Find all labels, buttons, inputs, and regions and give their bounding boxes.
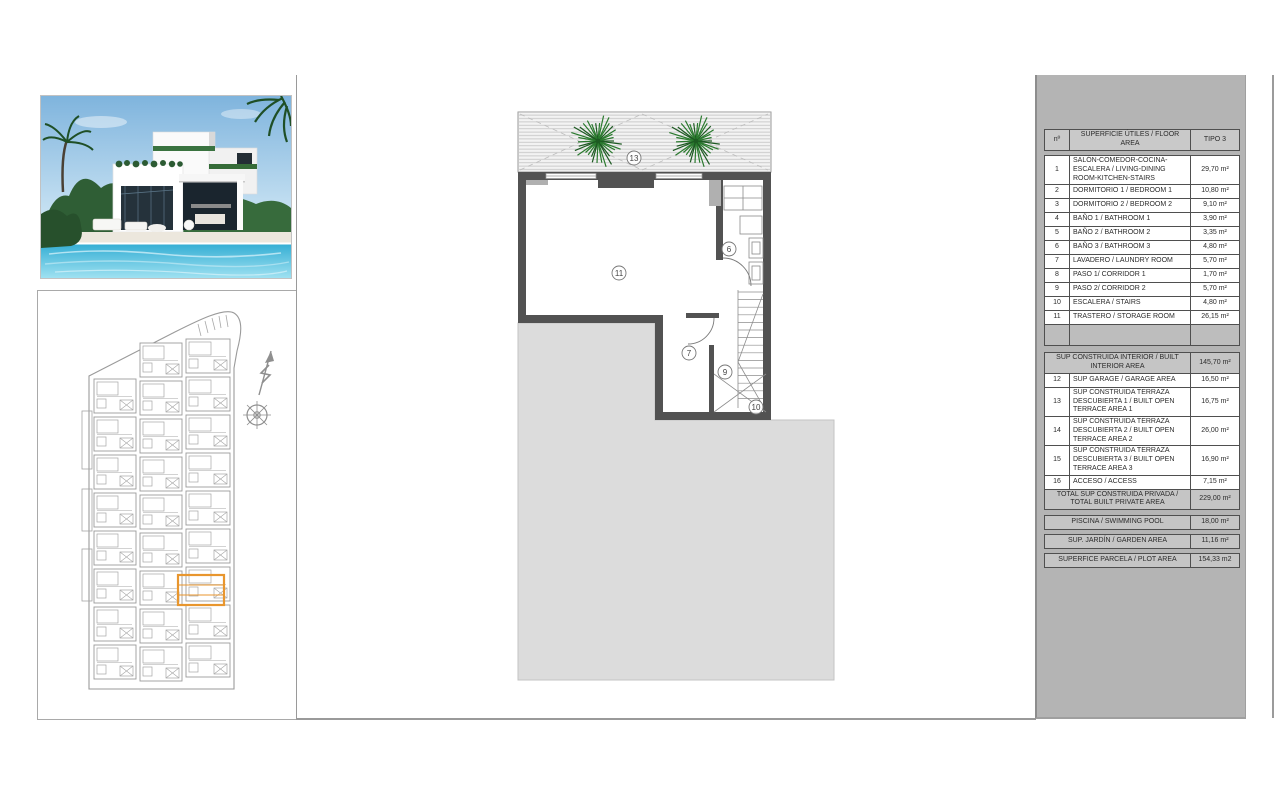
row-name: BAÑO 2 / BATHROOM 2: [1070, 227, 1190, 240]
row-number: 14: [1045, 417, 1070, 445]
garden-section: SUP. JARDÍN / GARDEN AREA 11,16 m²: [1044, 534, 1240, 549]
table-header-section: nº SUPERFICIE ÚTILES / FLOOR AREA TIPO 3: [1044, 129, 1240, 151]
table-row: 4 BAÑO 1 / BATHROOM 1 3,90 m²: [1045, 212, 1239, 226]
row-value: 7,15 m²: [1190, 476, 1239, 489]
row-number: 15: [1045, 446, 1070, 474]
row-value: 29,70 m²: [1190, 156, 1239, 184]
header-type: TIPO 3: [1190, 130, 1239, 150]
table-row-empty: [1045, 324, 1239, 345]
terrace-area: [518, 112, 771, 172]
plan-label-terrace: 13: [627, 151, 641, 165]
row-value: 5,70 m²: [1190, 255, 1239, 268]
useful-areas-section: 1 SALÓN-COMEDOR-COCINA-ESCALERA / LIVING…: [1044, 155, 1240, 346]
bathroom-fixtures: [724, 186, 763, 284]
table-row: 11 TRASTERO / STORAGE ROOM 26,15 m²: [1045, 310, 1239, 324]
row-name: PASO 1/ CORRIDOR 1: [1070, 269, 1190, 282]
table-row: 2 DORMITORIO 1 / BEDROOM 1 10,80 m²: [1045, 184, 1239, 198]
row-name: TOTAL SUP CONSTRUIDA PRIVADA / TOTAL BUI…: [1045, 490, 1190, 510]
row-value: 5,70 m²: [1190, 283, 1239, 296]
site-plan-drawing: [38, 291, 296, 719]
table-row: 7 LAVADERO / LAUNDRY ROOM 5,70 m²: [1045, 254, 1239, 268]
row-number: 5: [1045, 227, 1070, 240]
table-row: 9 PASO 2/ CORRIDOR 2 5,70 m²: [1045, 282, 1239, 296]
table-row: 10 ESCALERA / STAIRS 4,80 m²: [1045, 296, 1239, 310]
row-value: 4,80 m²: [1190, 297, 1239, 310]
table-header-row: nº SUPERFICIE ÚTILES / FLOOR AREA TIPO 3: [1045, 130, 1239, 150]
plan-label-corridor-2: 9: [718, 365, 732, 379]
row-name: SUP GARAGE / GARAGE AREA: [1070, 374, 1190, 387]
table-row: 15 SUP CONSTRUIDA TERRAZA DESCUBIERTA 3 …: [1045, 445, 1239, 474]
table-row: 5 BAÑO 2 / BATHROOM 2 3,35 m²: [1045, 226, 1239, 240]
door-swing: [688, 258, 751, 344]
row-name: SUP CONSTRUIDA INTERIOR / BUILT INTERIOR…: [1045, 353, 1190, 373]
row-value: 3,90 m²: [1190, 213, 1239, 226]
row-value: 4,80 m²: [1190, 241, 1239, 254]
row-number: 16: [1045, 476, 1070, 489]
table-row: 14 SUP CONSTRUIDA TERRAZA DESCUBIERTA 2 …: [1045, 416, 1239, 445]
row-value: 11,16 m²: [1190, 535, 1239, 548]
row-number: 7: [1045, 255, 1070, 268]
row-name: SUP CONSTRUIDA TERRAZA DESCUBIERTA 2 / B…: [1070, 417, 1190, 445]
areas-panel: nº SUPERFICIE ÚTILES / FLOOR AREA TIPO 3…: [1035, 75, 1246, 719]
table-row: 16 ACCESO / ACCESS 7,15 m²: [1045, 475, 1239, 489]
svg-text:9: 9: [723, 368, 728, 377]
row-number: 10: [1045, 297, 1070, 310]
svg-text:10: 10: [752, 403, 761, 412]
table-row: 12 SUP GARAGE / GARAGE AREA 16,50 m²: [1045, 373, 1239, 387]
row-value: 16,50 m²: [1190, 374, 1239, 387]
row-number: 9: [1045, 283, 1070, 296]
row-name: LAVADERO / LAUNDRY ROOM: [1070, 255, 1190, 268]
floor-plan-panel: 13 11 6 7 9 10: [296, 75, 1036, 720]
row-name: BAÑO 3 / BATHROOM 3: [1070, 241, 1190, 254]
table-row: 8 PASO 1/ CORRIDOR 1 1,70 m²: [1045, 268, 1239, 282]
plan-label-storage-room: 11: [612, 266, 626, 280]
plot-section: SUPERFICE PARCELA / PLOT AREA 154,33 m2: [1044, 553, 1240, 568]
floor-plan-drawing: 13 11 6 7 9 10: [516, 110, 836, 682]
row-value: 18,00 m²: [1190, 516, 1239, 529]
site-plan: [37, 290, 297, 720]
north-arrow-icon: [243, 351, 274, 429]
villa-photo: [40, 95, 292, 279]
row-number: 6: [1045, 241, 1070, 254]
row-value: 26,15 m²: [1190, 311, 1239, 324]
row-value: 229,00 m²: [1190, 490, 1239, 510]
plan-label-bathroom-3: 6: [722, 242, 736, 256]
stairs-drawing: [714, 290, 766, 412]
table-row: 13 SUP CONSTRUIDA TERRAZA DESCUBIERTA 1 …: [1045, 387, 1239, 416]
header-name: SUPERFICIE ÚTILES / FLOOR AREA: [1070, 130, 1190, 150]
row-number: 13: [1045, 388, 1070, 416]
table-row: 6 BAÑO 3 / BATHROOM 3 4,80 m²: [1045, 240, 1239, 254]
table-row: 1 SALÓN-COMEDOR-COCINA-ESCALERA / LIVING…: [1045, 156, 1239, 184]
row-value: 154,33 m2: [1190, 554, 1239, 567]
row-name: SUPERFICE PARCELA / PLOT AREA: [1045, 554, 1190, 567]
row-name: ESCALERA / STAIRS: [1070, 297, 1190, 310]
row-value: 10,80 m²: [1190, 185, 1239, 198]
row-value: 9,10 m²: [1190, 199, 1239, 212]
built-areas-section: SUP CONSTRUIDA INTERIOR / BUILT INTERIOR…: [1044, 352, 1240, 510]
svg-text:6: 6: [727, 245, 732, 254]
plan-sheet-page: 13 11 6 7 9 10: [0, 0, 1280, 800]
plan-label-stairs: 10: [749, 400, 763, 414]
row-number: 12: [1045, 374, 1070, 387]
garden-row: SUP. JARDÍN / GARDEN AREA 11,16 m²: [1045, 535, 1239, 548]
row-name: PASO 2/ CORRIDOR 2: [1070, 283, 1190, 296]
row-name: ACCESO / ACCESS: [1070, 476, 1190, 489]
row-name: BAÑO 1 / BATHROOM 1: [1070, 213, 1190, 226]
row-name: PISCINA / SWIMMING POOL: [1045, 516, 1190, 529]
row-value: 26,00 m²: [1190, 417, 1239, 445]
plan-label-laundry: 7: [682, 346, 696, 360]
row-name: SUP CONSTRUIDA TERRAZA DESCUBIERTA 3 / B…: [1070, 446, 1190, 474]
row-value: 16,90 m²: [1190, 446, 1239, 474]
row-number: 2: [1045, 185, 1070, 198]
row-value: 16,75 m²: [1190, 388, 1239, 416]
row-name: SALÓN-COMEDOR-COCINA-ESCALERA / LIVING-D…: [1070, 156, 1190, 184]
row-value: 1,70 m²: [1190, 269, 1239, 282]
row-name: DORMITORIO 2 / BEDROOM 2: [1070, 199, 1190, 212]
built-interior-total-row: SUP CONSTRUIDA INTERIOR / BUILT INTERIOR…: [1045, 353, 1239, 373]
areas-table: nº SUPERFICIE ÚTILES / FLOOR AREA TIPO 3…: [1044, 129, 1240, 568]
row-number: 3: [1045, 199, 1070, 212]
header-number: nº: [1045, 130, 1070, 150]
svg-text:13: 13: [630, 154, 639, 163]
svg-text:7: 7: [687, 349, 692, 358]
plot-row: SUPERFICE PARCELA / PLOT AREA 154,33 m2: [1045, 554, 1239, 567]
row-value: 3,35 m²: [1190, 227, 1239, 240]
row-name: DORMITORIO 1 / BEDROOM 1: [1070, 185, 1190, 198]
page-right-border: [1272, 75, 1274, 718]
row-name: TRASTERO / STORAGE ROOM: [1070, 311, 1190, 324]
row-number: 1: [1045, 156, 1070, 184]
row-name: SUP. JARDÍN / GARDEN AREA: [1045, 535, 1190, 548]
row-name: SUP CONSTRUIDA TERRAZA DESCUBIERTA 1 / B…: [1070, 388, 1190, 416]
row-number: 11: [1045, 311, 1070, 324]
villa-photo-render: [41, 96, 291, 278]
built-private-total-row: TOTAL SUP CONSTRUIDA PRIVADA / TOTAL BUI…: [1045, 489, 1239, 510]
pool-row: PISCINA / SWIMMING POOL 18,00 m²: [1045, 516, 1239, 529]
table-row: 3 DORMITORIO 2 / BEDROOM 2 9,10 m²: [1045, 198, 1239, 212]
row-value: 145,70 m²: [1190, 353, 1239, 373]
floor-plan: 13 11 6 7 9 10: [516, 110, 836, 682]
svg-text:11: 11: [615, 269, 624, 278]
row-number: 4: [1045, 213, 1070, 226]
garden-area: [518, 323, 834, 680]
pool-section: PISCINA / SWIMMING POOL 18,00 m²: [1044, 515, 1240, 530]
row-number: 8: [1045, 269, 1070, 282]
